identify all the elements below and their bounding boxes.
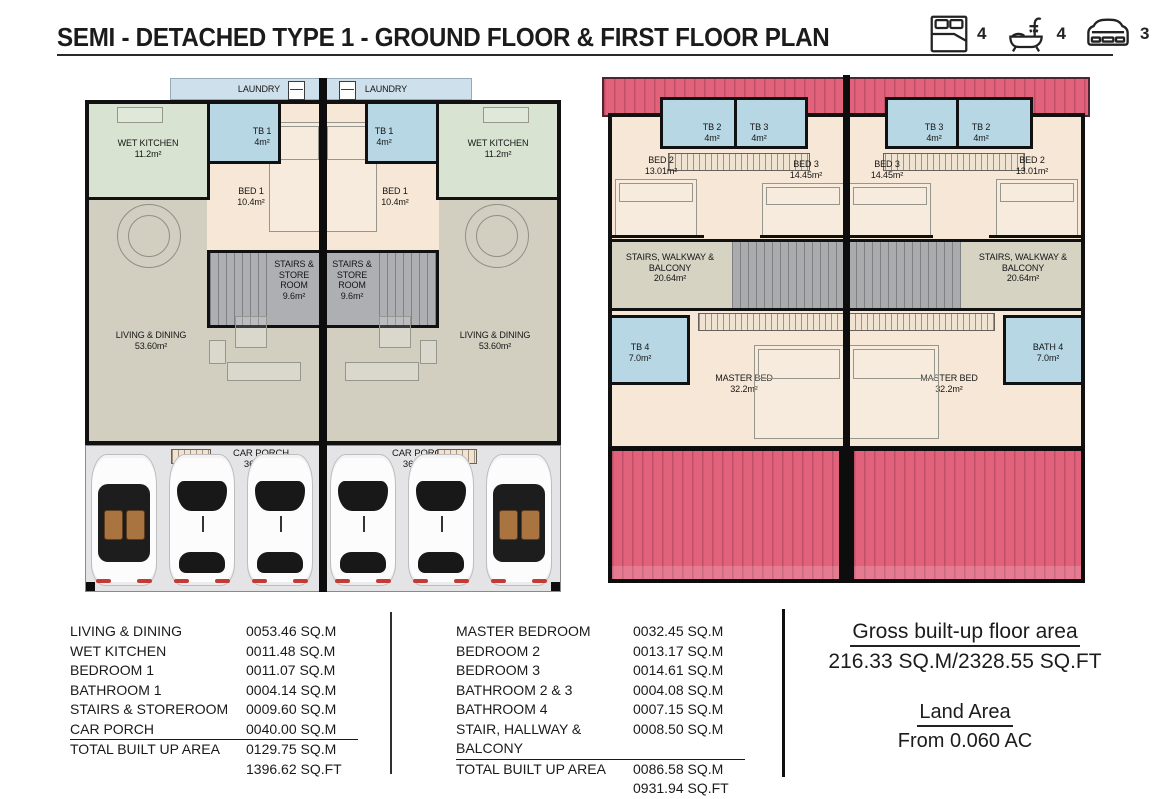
room-bath4-label: BATH 47.0m² <box>1021 342 1075 363</box>
ground-floor-plan: LAUNDRY LAUNDRY BED 110.4m² TB 14m² <box>80 78 566 592</box>
staircase <box>847 242 961 308</box>
wardrobe-glyph <box>845 313 995 331</box>
room-wet-kitchen-label: WET KITCHEN11.2m² <box>453 138 543 159</box>
table-row: BATHROOM 2 & 30004.08 SQ.M <box>456 681 745 701</box>
column-marker <box>86 582 95 591</box>
summary-block: Gross built-up floor area 216.33 SQ.M/23… <box>798 620 1132 753</box>
table-row: BEDROOM 20013.17 SQ.M <box>456 642 745 662</box>
table-row: MASTER BEDROOM0032.45 SQ.M <box>456 622 745 642</box>
first-floor-plan: TB 24m² TB 34m² BED 213.01m² BED 314.45m… <box>600 75 1092 587</box>
room-tb1-label: TB 14m² <box>364 126 404 147</box>
table-row: BATHROOM 10004.14 SQ.M <box>70 681 358 701</box>
table-row: BEDROOM 30014.61 SQ.M <box>456 661 745 681</box>
land-area-title: Land Area <box>917 701 1012 727</box>
room-bath4: BATH 47.0m² <box>1003 315 1081 385</box>
room-bed3-label: BED 314.45m² <box>848 159 926 180</box>
table-row: LIVING & DINING0053.46 SQ.M <box>70 622 358 642</box>
gross-area-title: Gross built-up floor area <box>850 620 1079 647</box>
window-icon <box>288 81 305 100</box>
table-row-total: TOTAL BUILT UP AREA0129.75 SQ.M <box>70 740 358 760</box>
stair-treads <box>378 253 436 325</box>
room-bed2-label: BED 213.01m² <box>987 155 1077 176</box>
room-stairs-walkway-label: STAIRS, WALKWAY & BALCONY20.64m² <box>977 252 1069 284</box>
column-marker <box>551 582 560 591</box>
car-convertible <box>91 454 157 586</box>
legend: 4 4 3 <box>928 14 1149 54</box>
stair-treads <box>847 242 961 308</box>
room-living-dining-label: LIVING & DINING53.60m² <box>433 330 557 351</box>
ground-floor-area-table: LIVING & DINING0053.46 SQ.M WET KITCHEN0… <box>70 622 358 779</box>
room-wet-kitchen: WET KITCHEN11.2m² <box>436 104 557 200</box>
table-row: STAIR, HALLWAY & BALCONY0008.50 SQ.M <box>456 720 745 760</box>
room-stairs-walkway: STAIRS, WALKWAY & BALCONY20.64m² <box>961 242 1081 308</box>
coffee-table-glyph <box>379 316 411 348</box>
bed-glyph <box>849 183 931 237</box>
room-stairs-storeroom-label: STAIRS & STORE ROOM9.6m² <box>326 259 378 301</box>
page-title: SEMI - DETACHED TYPE 1 - GROUND FLOOR & … <box>57 22 829 53</box>
roof-bottom-right <box>850 447 1085 583</box>
table-row-total-sqft: 1396.62 SQ.FT <box>70 760 358 780</box>
bath-icon <box>1003 14 1049 54</box>
table-row: BEDROOM 10011.07 SQ.M <box>70 661 358 681</box>
room-tb2-label: TB 24m² <box>960 122 1002 143</box>
floor-plan-page: { "header": { "title": "SEMI - DETACHED … <box>0 0 1170 785</box>
interior-wall <box>989 235 1081 238</box>
party-wall <box>319 78 327 592</box>
table-row: WET KITCHEN0011.48 SQ.M <box>70 642 358 662</box>
land-area-value: From 0.060 AC <box>798 730 1132 753</box>
room-tb1: TB 14m² <box>365 104 445 164</box>
table-divider <box>390 612 392 774</box>
bed-icon <box>928 15 970 53</box>
kitchen-sink-glyph <box>483 107 529 123</box>
roof-bottom-left <box>608 447 843 583</box>
table-row: STAIRS & STOREROOM0009.60 SQ.M <box>70 700 358 720</box>
bathrooms-count: 4 <box>1056 24 1065 44</box>
first-floor-area-table: MASTER BEDROOM0032.45 SQ.M BEDROOM 20013… <box>456 622 745 799</box>
car <box>330 454 396 586</box>
bathroom-block: TB 24m² TB 34m² <box>885 97 1033 149</box>
stairs-band: STAIRS, WALKWAY & BALCONY20.64m² <box>847 239 1081 311</box>
bathroom-divider-wall <box>956 100 959 146</box>
bed-glyph <box>996 179 1078 237</box>
room-tb3-label: TB 34m² <box>913 122 955 143</box>
car-icon <box>1083 15 1133 53</box>
sofa-glyph <box>345 362 419 381</box>
table-row: CAR PORCH0040.00 SQ.M <box>70 720 358 741</box>
window-icon <box>339 81 356 100</box>
table-divider <box>782 609 785 777</box>
car <box>169 454 235 586</box>
carparks-count: 3 <box>1140 24 1149 44</box>
car <box>247 454 313 586</box>
title-divider <box>57 54 1113 56</box>
party-wall <box>843 75 850 583</box>
bed-glyph <box>849 345 939 439</box>
table-row-total: TOTAL BUILT UP AREA0086.58 SQ.M <box>456 760 745 780</box>
interior-wall <box>847 235 933 238</box>
table-row-total-sqft: 0931.94 SQ.FT <box>456 779 745 799</box>
bedrooms-count: 4 <box>977 24 986 44</box>
table-row: BATHROOM 40007.15 SQ.M <box>456 700 745 720</box>
dining-table-glyph <box>465 204 529 268</box>
car-convertible <box>486 454 552 586</box>
car <box>408 454 474 586</box>
gross-area-value: 216.33 SQ.M/2328.55 SQ.FT <box>798 650 1132 674</box>
armchair-glyph <box>420 340 437 364</box>
